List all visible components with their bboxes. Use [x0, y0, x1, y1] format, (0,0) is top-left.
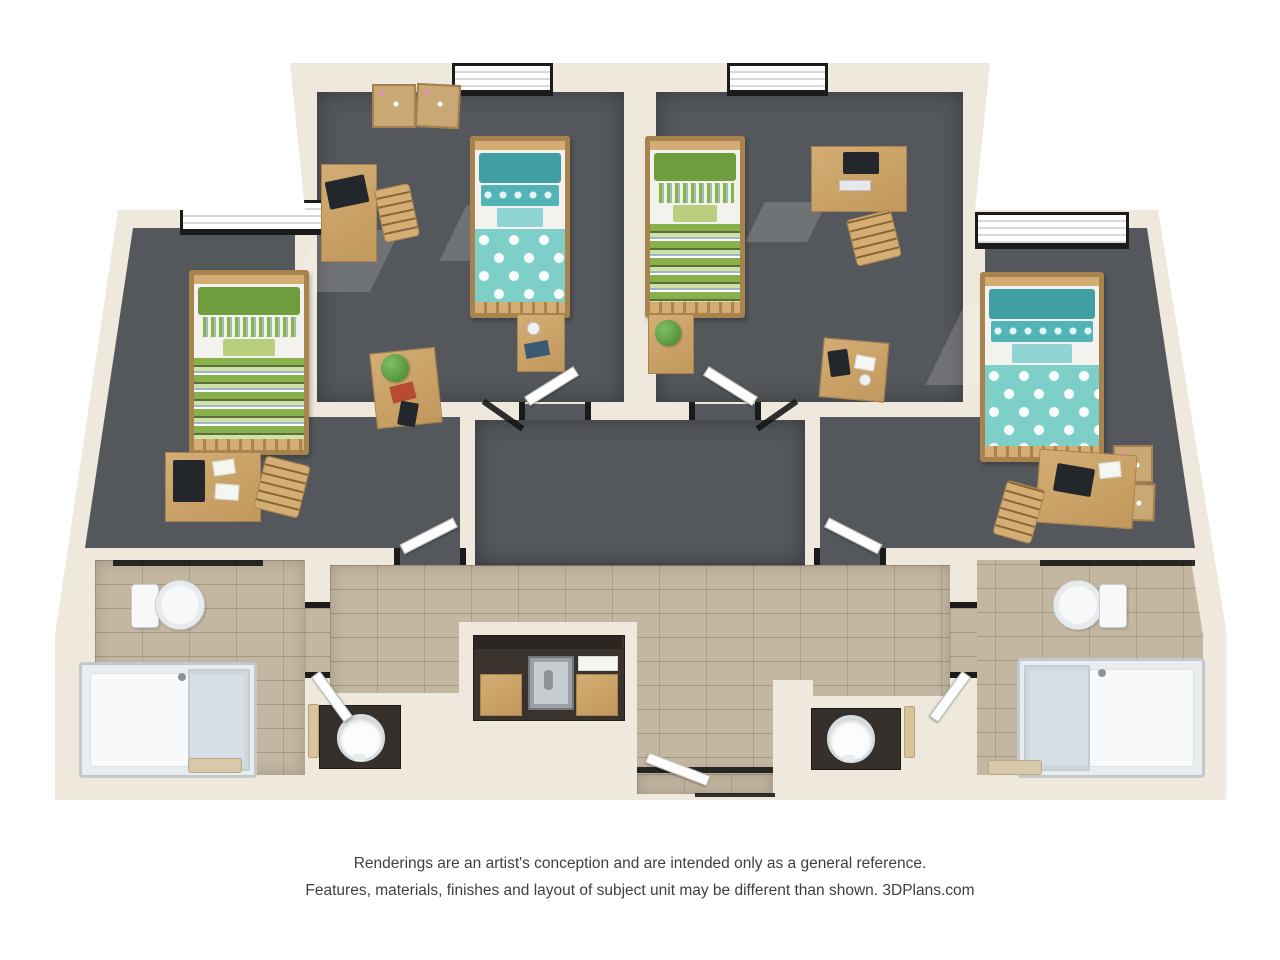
bed-headboard [194, 275, 304, 284]
bed-bedroom-left [189, 270, 309, 455]
toilet-tank-right [1099, 584, 1127, 628]
bed-accent-pillow [497, 208, 544, 227]
bed-bedroom-center-left [470, 136, 570, 318]
bathroom-right-wall-trim [1040, 560, 1195, 566]
toilet-bowl-right [1053, 580, 1103, 630]
bed-pillow [198, 287, 300, 315]
kitchenette-faucet [544, 670, 553, 690]
bed-pillow [654, 153, 736, 181]
shower-head-icon [1098, 669, 1106, 677]
doorway-center-left [525, 404, 585, 420]
door-jamb [519, 402, 525, 420]
papers-icon [212, 459, 236, 477]
disclaimer-caption: Renderings are an artist's conception an… [0, 850, 1280, 904]
doorway-center-right [695, 404, 755, 420]
door-jamb [305, 602, 330, 608]
door-jamb [880, 548, 886, 565]
shower-glass [188, 669, 250, 771]
disclaimer-line-1: Renderings are an artist's conception an… [0, 850, 1280, 877]
kitchenette-towel [578, 656, 618, 671]
bed-pillow [479, 153, 561, 183]
mug-icon [859, 374, 871, 386]
tablet-icon [827, 349, 850, 378]
plant-icon [655, 320, 681, 346]
bulletin-board [372, 84, 416, 128]
bulletin-board [415, 83, 461, 129]
bed-accent-pillow [223, 339, 276, 356]
door-jamb [755, 402, 761, 420]
door-jamb [689, 402, 695, 420]
toilet-bowl-left [155, 580, 205, 630]
shower-glass [1024, 665, 1090, 771]
monitor-icon [843, 152, 879, 174]
vanity-right-faucet [843, 755, 855, 762]
window-bedroom-left [180, 200, 328, 235]
kitchenette-cabinet-right [576, 674, 618, 716]
carpet-tile-seam [475, 563, 805, 566]
entry-hall-floor [475, 420, 805, 565]
bed-bedroom-right [980, 272, 1104, 462]
shower-head-icon [178, 673, 186, 681]
door-jamb [814, 548, 820, 565]
bed-pillow [989, 289, 1095, 319]
entry-baseboard [637, 767, 773, 773]
vanity-left-faucet [353, 754, 365, 761]
kitchenette-cabinet-left [480, 674, 522, 716]
door-jamb [585, 402, 591, 420]
bed-headboard [650, 141, 740, 150]
bath-mat-left [188, 758, 242, 773]
floor-plan-page: Renderings are an artist's conception an… [0, 0, 1280, 960]
doorway-bathroom-left [305, 608, 330, 672]
towel-bar-left [308, 704, 319, 758]
door-jamb [394, 548, 400, 565]
window-bedroom-center-left [452, 63, 553, 96]
bed-striped-pillow [200, 317, 298, 337]
disclaimer-line-2: Features, materials, finishes and layout… [0, 877, 1280, 904]
keyboard-icon [839, 180, 871, 191]
window-bedroom-right [975, 212, 1129, 249]
bed-patterned-pillow [481, 185, 559, 206]
plant-icon [381, 354, 409, 382]
kitchenette-sink-unit [473, 635, 625, 721]
bath-mat-right [988, 760, 1042, 775]
towel-bar-right [904, 706, 915, 758]
bed-striped-pillow [656, 183, 734, 203]
doorway-bathroom-right [950, 608, 977, 672]
door-jamb [950, 602, 977, 608]
papers-icon [214, 483, 239, 501]
bed-patterned-pillow [991, 321, 1093, 342]
bathroom-left-wall-trim [113, 560, 263, 566]
papers-icon [1098, 461, 1122, 479]
bed-accent-pillow [1012, 344, 1071, 363]
bed-footboard [194, 439, 304, 450]
bed-quilt [985, 365, 1099, 446]
floor-plan-rendering [55, 60, 1225, 800]
door-jamb [460, 548, 466, 565]
bed-quilt [650, 224, 740, 302]
mug-icon [527, 322, 540, 335]
shower-right [1017, 658, 1205, 778]
bed-quilt [475, 229, 565, 302]
bed-headboard [985, 277, 1099, 286]
bed-accent-pillow [673, 205, 716, 222]
bed-footboard [475, 302, 565, 313]
entry-step [695, 793, 775, 797]
kitchenette-backsplash [474, 636, 622, 649]
laptop-icon [173, 460, 205, 502]
bed-headboard [475, 141, 565, 150]
bed-bedroom-center-right [645, 136, 745, 318]
bed-quilt [194, 358, 304, 439]
window-bedroom-center-right [727, 63, 828, 96]
bed-footboard [650, 302, 740, 313]
